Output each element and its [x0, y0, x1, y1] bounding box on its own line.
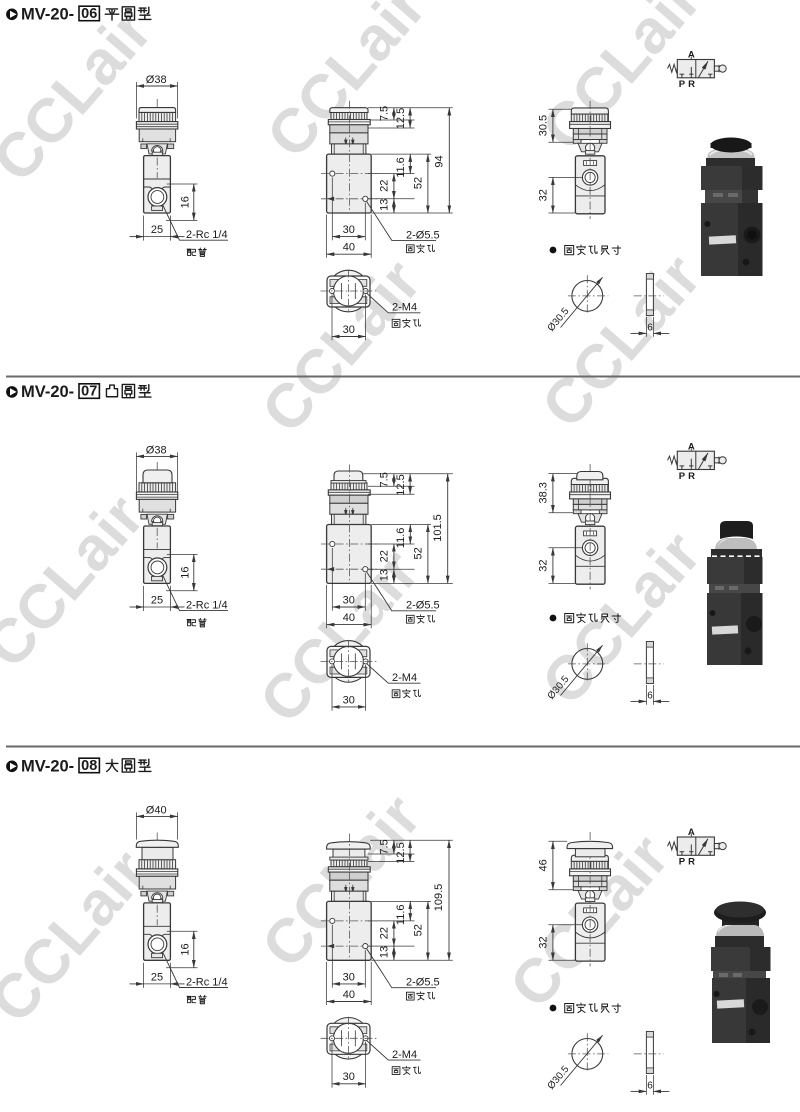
- svg-text:CCLair: CCLair: [0, 0, 165, 195]
- svg-text:7.5: 7.5: [378, 106, 390, 121]
- svg-text:30.5: 30.5: [537, 115, 549, 136]
- svg-text:MV-20-: MV-20-: [21, 383, 74, 401]
- svg-text:94: 94: [434, 155, 446, 167]
- svg-text:MV-20-: MV-20-: [21, 757, 74, 775]
- svg-text:7.5: 7.5: [378, 839, 390, 854]
- svg-text:46: 46: [537, 859, 549, 871]
- svg-text:06: 06: [81, 6, 97, 22]
- svg-text:12.5: 12.5: [395, 108, 407, 129]
- svg-text:07: 07: [81, 384, 97, 400]
- svg-text:Ø38: Ø38: [146, 445, 167, 457]
- svg-text:12.5: 12.5: [395, 842, 407, 863]
- svg-text:101.5: 101.5: [432, 514, 444, 542]
- svg-text:Ø40: Ø40: [146, 805, 167, 817]
- svg-text:08: 08: [81, 758, 97, 774]
- svg-text:Ø38: Ø38: [146, 74, 167, 86]
- svg-text:CCLair: CCLair: [0, 837, 162, 1036]
- svg-text:38.3: 38.3: [537, 482, 549, 503]
- svg-text:CCLair: CCLair: [0, 482, 157, 681]
- svg-text:109.5: 109.5: [433, 884, 445, 912]
- svg-text:12.5: 12.5: [395, 474, 407, 495]
- svg-text:CCLair: CCLair: [529, 0, 714, 164]
- svg-text:MV-20-: MV-20-: [21, 5, 74, 23]
- svg-text:7.5: 7.5: [378, 472, 390, 487]
- svg-text:CCLair: CCLair: [529, 242, 714, 441]
